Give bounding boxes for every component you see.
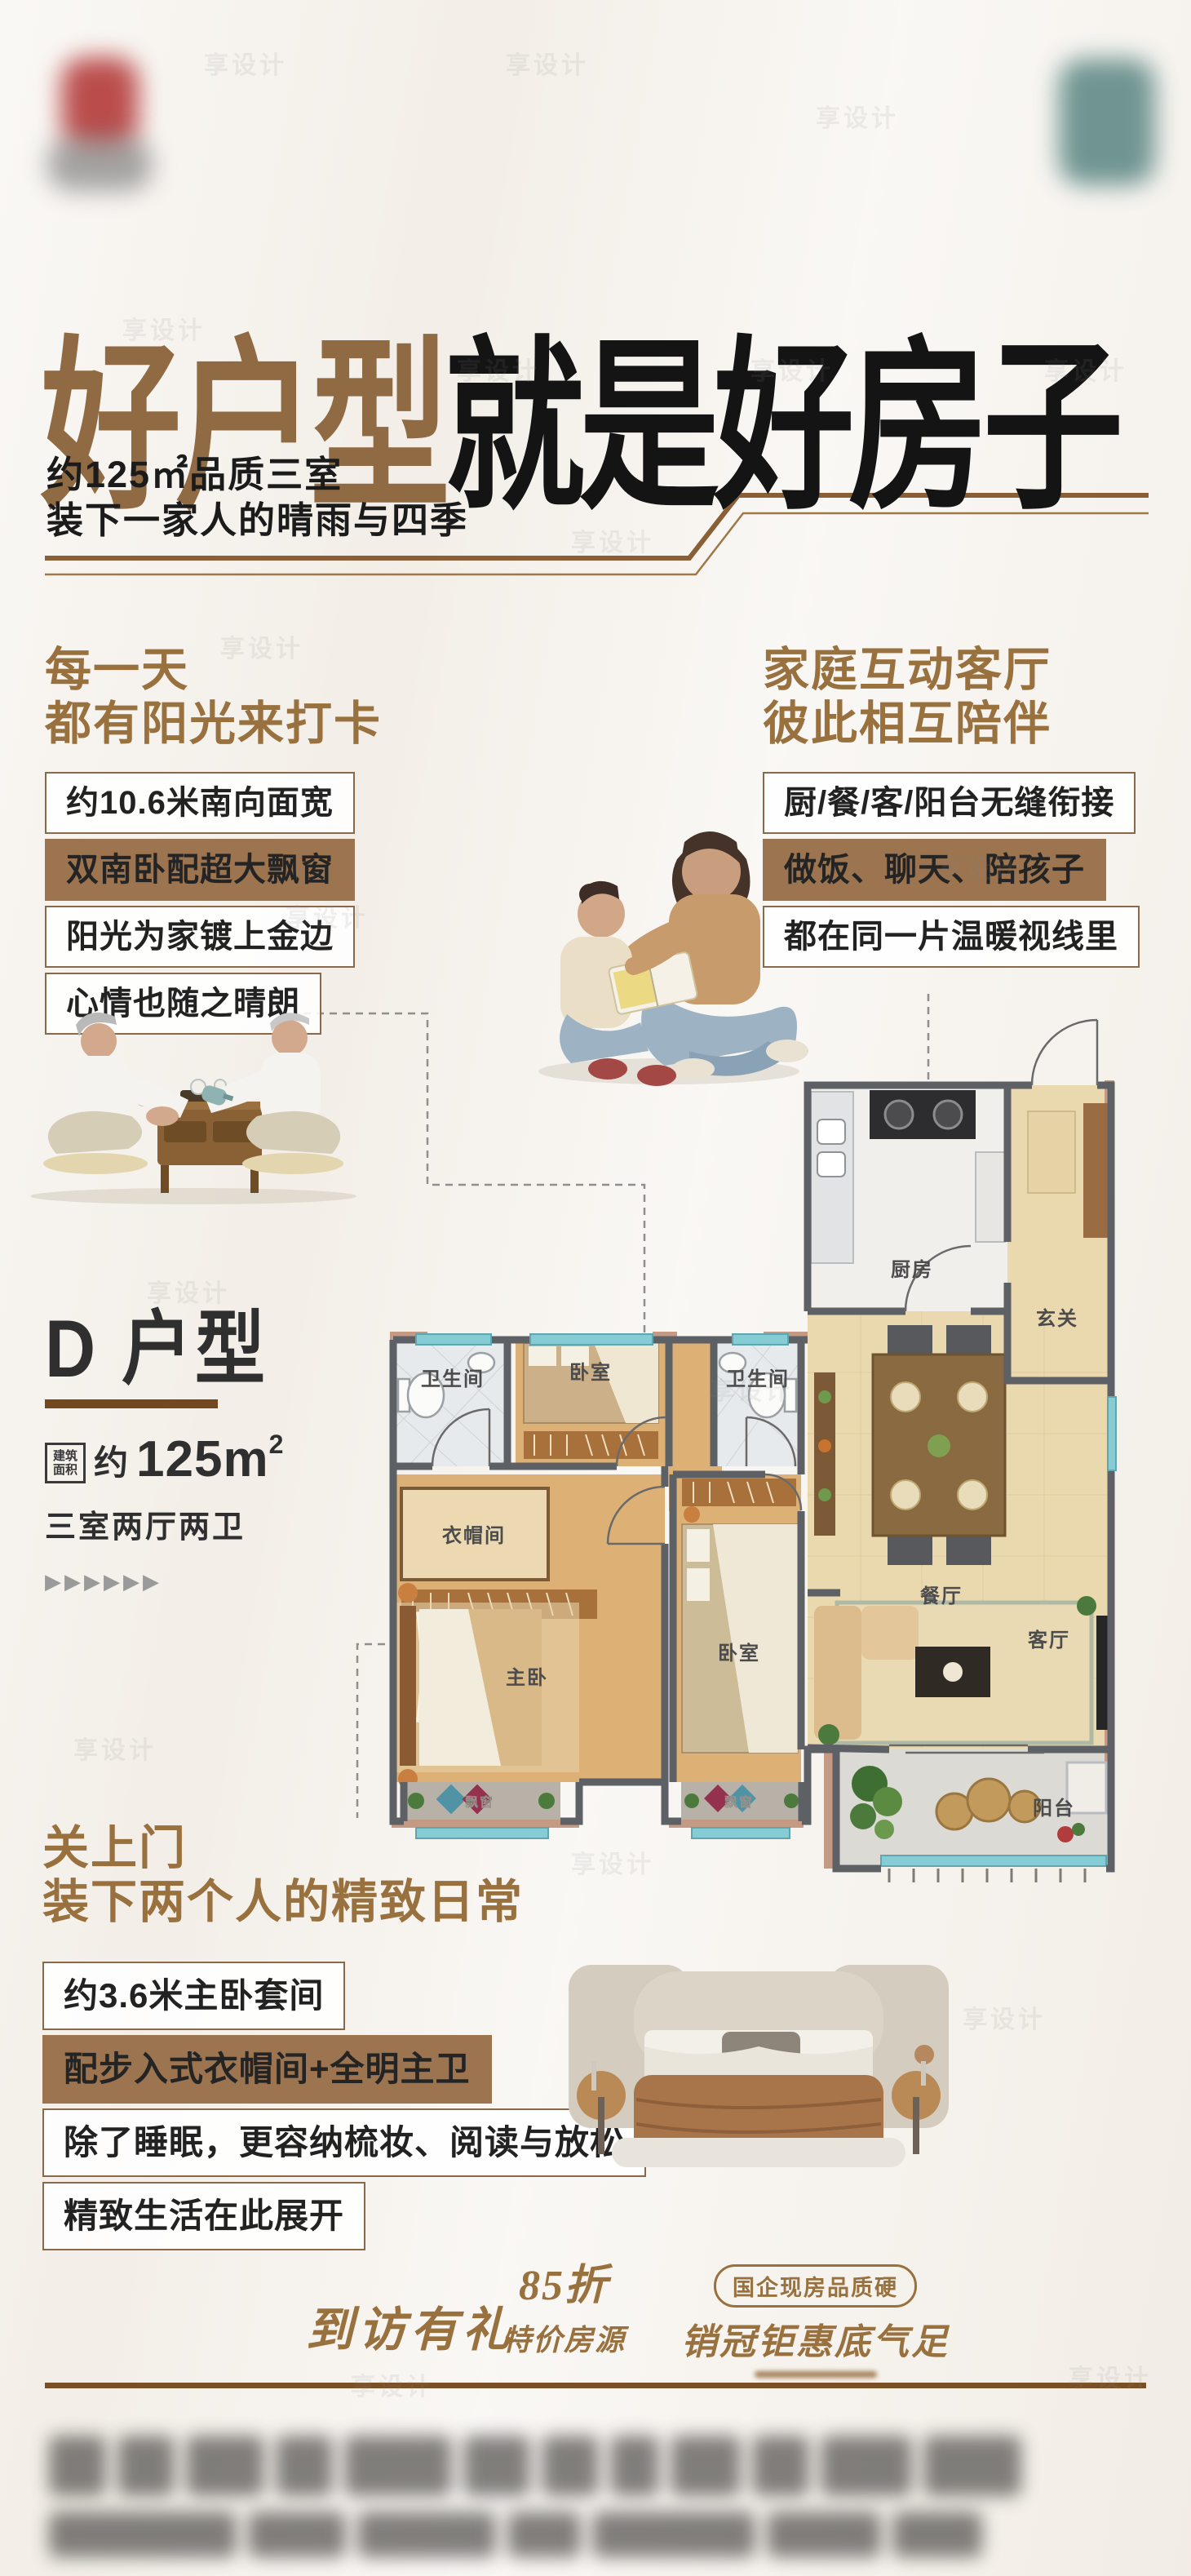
watermark: 享设计 <box>204 45 287 81</box>
section-family: 家庭互动客厅 彼此相互陪伴 厨/餐/客/阳台无缝衔接 做饭、聊天、陪孩子 都在同… <box>763 643 1140 973</box>
area-badge-line2: 面积 <box>53 1463 77 1477</box>
watermark: 享设计 <box>816 98 899 134</box>
disclaimer-blurred-line1 <box>49 2436 1021 2496</box>
list-item-highlight: 双南卧配超大飘窗 <box>45 839 355 901</box>
list-item: 约10.6米南向面宽 <box>45 772 355 834</box>
master-bed <box>395 1583 579 1789</box>
photo-bedroom-bed <box>567 1924 950 2169</box>
unit-name: D 户型 <box>45 1283 284 1400</box>
unit-underline-bar <box>45 1399 218 1408</box>
badge-visit-gift: 到访有礼 <box>306 2291 515 2360</box>
section-family-heading-line1: 家庭互动客厅 <box>763 643 1140 697</box>
list-item: 约3.6米主卧套间 <box>42 1962 345 2030</box>
list-item: 除了睡眠，更容纳梳妆、阅读与放松 <box>42 2108 646 2177</box>
section-master-heading-line2: 装下两个人的精致日常 <box>42 1875 646 1929</box>
room-label-master: 主卧 <box>506 1667 548 1689</box>
area-superscript: 2 <box>269 1430 285 1459</box>
badge-quality: 国企现房品质硬 销冠钜惠底气足 <box>681 2264 950 2378</box>
area-prefix: 约 <box>94 1435 128 1485</box>
unit-info: D 户型 建筑 面积 约 125m2 三室两厅两卫 ▶▶▶▶▶▶ <box>45 1283 284 1594</box>
watermark: 享设计 <box>1069 2358 1152 2394</box>
watermark: 享设计 <box>963 1999 1046 2035</box>
room-label-dining: 餐厅 <box>920 1585 963 1607</box>
subtitle-line2: 装下一家人的晴雨与四季 <box>46 490 468 543</box>
developer-logo-left-icon <box>61 57 139 147</box>
project-logo-right-icon <box>1059 59 1155 185</box>
poster: 享设计 享设计 享设计 享设计 享设计 享设计 享设计 享设计 享设计 享设计 … <box>0 0 1191 2576</box>
list-item: 阳光为家镀上金边 <box>45 906 355 968</box>
room-label-living: 客厅 <box>1028 1629 1070 1652</box>
area-badge-line1: 建筑 <box>53 1449 77 1463</box>
room-label-bath-a: 卫生间 <box>421 1368 485 1390</box>
unit-layout: 三室两厅两卫 <box>45 1501 284 1546</box>
badge-quality-main: 销冠钜惠底气足 <box>681 2312 950 2365</box>
section-sunlight-heading-line2: 都有阳光来打卡 <box>45 697 382 751</box>
list-item: 精致生活在此展开 <box>42 2182 365 2250</box>
badge-discount-line1: 85折 <box>502 2250 626 2312</box>
badge-quality-subtext-blurred <box>755 2371 877 2378</box>
section-sunlight: 每一天 都有阳光来打卡 约10.6米南向面宽 双南卧配超大飘窗 阳光为家镀上金边… <box>45 643 382 1040</box>
section-sunlight-heading-line1: 每一天 <box>45 643 382 697</box>
room-label-baywindow-b: 飘窗 <box>724 1794 754 1810</box>
living-room-furniture <box>814 1596 1108 1745</box>
badge-discount: 85折 特价房源 <box>502 2250 626 2359</box>
list-item: 厨/餐/客/阳台无缝衔接 <box>763 772 1136 834</box>
section-family-heading-line2: 彼此相互陪伴 <box>763 697 1140 751</box>
room-label-bedroom-second: 卧室 <box>718 1642 760 1665</box>
main-title-rest: 就是好房子 <box>445 324 1118 530</box>
unit-area: 建筑 面积 约 125m2 <box>45 1430 284 1488</box>
room-label-entry: 玄关 <box>1036 1307 1078 1330</box>
room-label-bedroom-top: 卧室 <box>569 1361 612 1384</box>
room-label-bath-b: 卫生间 <box>726 1368 790 1390</box>
section-master-heading: 关上门 装下两个人的精致日常 <box>42 1821 646 1929</box>
room-label-kitchen: 厨房 <box>891 1258 933 1281</box>
section-sunlight-list: 约10.6米南向面宽 双南卧配超大飘窗 阳光为家镀上金边 心情也随之晴朗 <box>45 772 382 1035</box>
watermark: 享设计 <box>73 1730 157 1766</box>
badge-discount-line2: 特价房源 <box>502 2317 626 2359</box>
top-bedroom-furniture <box>524 1343 658 1459</box>
arrows-decoration: ▶▶▶▶▶▶ <box>45 1569 284 1594</box>
footer-rule <box>45 2383 1146 2388</box>
area-value: 125m2 <box>136 1430 284 1488</box>
section-sunlight-heading: 每一天 都有阳光来打卡 <box>45 643 382 751</box>
list-item-highlight: 配步入式衣帽间+全明主卫 <box>42 2035 492 2104</box>
room-label-cloakroom: 衣帽间 <box>442 1524 506 1547</box>
disclaimer-blurred-line2 <box>49 2512 982 2557</box>
section-family-list: 厨/餐/客/阳台无缝衔接 做饭、聊天、陪孩子 都在同一片温暖视线里 <box>763 772 1140 968</box>
list-item: 都在同一片温暖视线里 <box>763 906 1140 968</box>
section-master-heading-line1: 关上门 <box>42 1821 646 1875</box>
room-label-baywindow-a: 飘窗 <box>465 1794 494 1810</box>
list-item-highlight: 做饭、聊天、陪孩子 <box>763 839 1106 901</box>
watermark: 享设计 <box>506 45 589 81</box>
badge-quality-pill: 国企现房品质硬 <box>714 2264 917 2308</box>
section-family-heading: 家庭互动客厅 彼此相互陪伴 <box>763 643 1140 751</box>
section-master-list: 约3.6米主卧套间 配步入式衣帽间+全明主卫 除了睡眠，更容纳梳妆、阅读与放松 … <box>42 1962 646 2250</box>
photo-elderly-tea <box>20 1002 367 1206</box>
developer-logo-left-text <box>47 137 152 191</box>
area-badge: 建筑 面积 <box>45 1443 86 1483</box>
section-master: 关上门 装下两个人的精致日常 约3.6米主卧套间 配步入式衣帽间+全明主卫 除了… <box>42 1821 646 2255</box>
floor-plan: 厨房 玄关 卫生间 卧室 卫生间 餐厅 衣帽间 主卧 卧室 客厅 阳台 飘窗 飘… <box>383 989 1118 1901</box>
room-label-balcony: 阳台 <box>1033 1797 1075 1820</box>
